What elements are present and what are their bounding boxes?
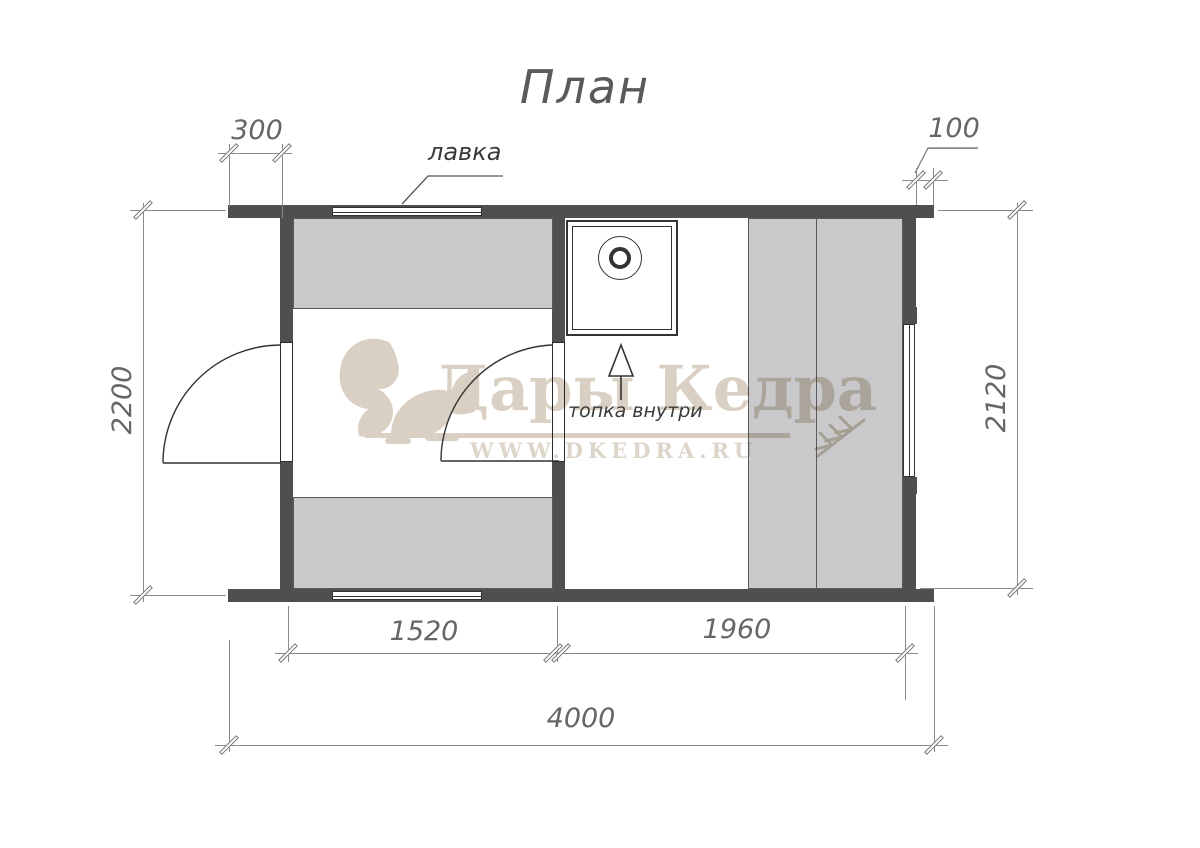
partition-wall-lower [552,462,565,589]
dim4000-line [215,745,948,746]
dim2120-value: 2120 [981,346,1011,450]
dim4000-value: 4000 [521,703,641,734]
bench-label: лавка [428,138,501,166]
bench-steam-high [816,218,903,589]
watermark-site: WWW.DKEDRA.RU [470,438,740,463]
stove-label: топка внутри [568,400,688,422]
dim100-ext-left [916,168,917,205]
interior-door-leaf [552,342,565,462]
squirrel-icon [333,330,485,452]
bench-strip-top [332,207,482,216]
stove-arrow-icon [609,345,633,400]
right-wall-upper [903,218,916,310]
entrance-door-swing [163,345,281,463]
dim100-leader-line [915,148,978,173]
bench-dressing-bottom [293,497,553,589]
dim2200-value: 2200 [107,348,137,452]
top-strip-block-left [318,205,333,218]
left-wall-lower [280,462,293,589]
dim4000-ext-left [229,640,230,752]
floor-plan-canvas: Дары Кедра WWW.DKEDRA.RU [0,0,1200,848]
dim-rooms-line [275,653,918,654]
page-title: План [485,60,685,114]
bench-steam-low [748,218,818,589]
bench-strip-bottom [332,591,482,600]
dim100-ext-right [933,168,934,205]
window-right [903,324,915,477]
dim1520-value: 1520 [364,616,484,647]
dim100-underline [928,148,978,149]
right-window-jamb-bottom [901,477,917,494]
dim1960-value: 1960 [677,614,797,645]
bottom-strip-block-right [480,589,495,602]
partition-wall-upper [552,218,565,342]
right-wall-lower [903,494,916,589]
interior-door-swing [441,345,559,461]
dim100-value: 100 [925,113,983,144]
dim300-value: 300 [228,115,286,146]
stove-circle-inner [609,247,631,269]
right-window-jamb-top [901,307,917,324]
dim2200-line [143,203,144,602]
entrance-door-leaf [280,342,293,462]
dim100-line [902,180,948,181]
watermark-underline [365,433,790,438]
left-wall-upper [280,218,293,342]
bottom-strip-block-left [318,589,333,602]
bench-leader-line [402,176,503,204]
top-strip-block-right [480,205,495,218]
dim2120-line [1017,203,1018,595]
dim4000-ext-right [934,606,935,752]
bench-dressing-top [293,218,553,309]
